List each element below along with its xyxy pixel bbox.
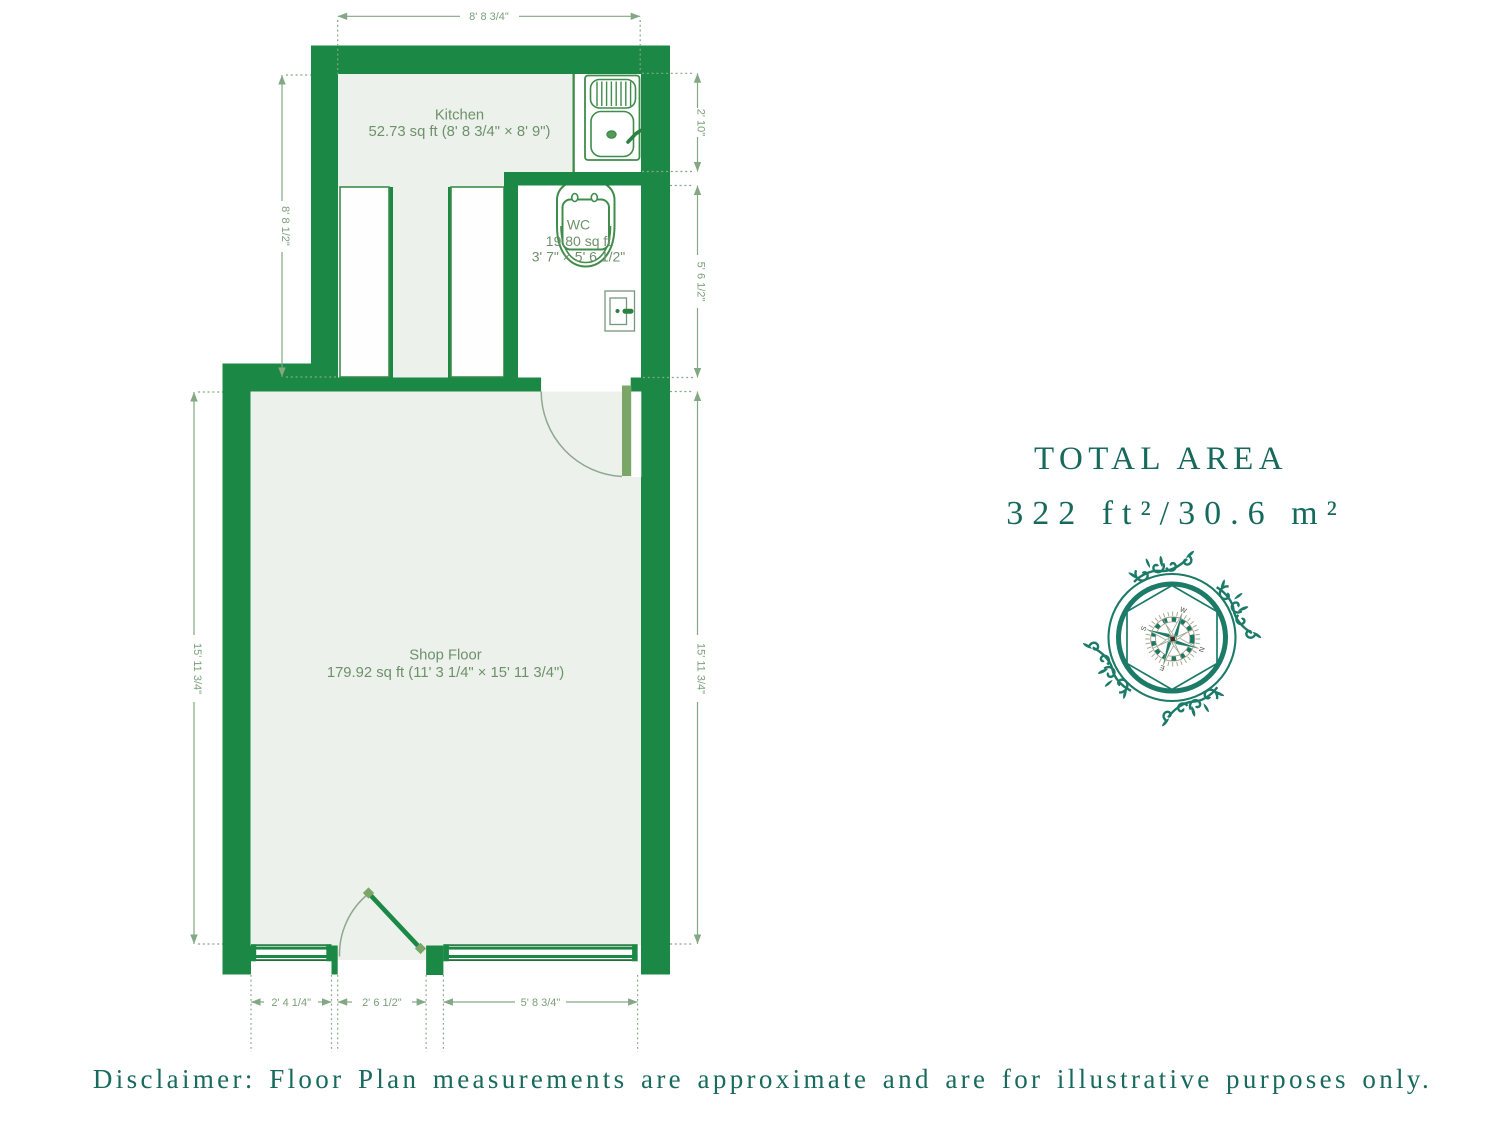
svg-text:2' 10": 2' 10"	[695, 109, 707, 137]
svg-text:WC: WC	[567, 216, 590, 232]
svg-text:Kitchen: Kitchen	[435, 108, 484, 124]
svg-text:8' 8 3/4": 8' 8 3/4"	[469, 11, 509, 23]
svg-text:S: S	[1140, 625, 1148, 632]
svg-text:2' 4 1/4": 2' 4 1/4"	[271, 997, 311, 1009]
svg-text:5' 8 3/4": 5' 8 3/4"	[521, 997, 561, 1009]
svg-text:Shop Floor: Shop Floor	[409, 648, 481, 664]
svg-text:322 ft²/30.6 m²: 322 ft²/30.6 m²	[1006, 495, 1346, 532]
svg-text:52.73 sq ft (8' 8 3/4" × 8' 9": 52.73 sq ft (8' 8 3/4" × 8' 9")	[369, 124, 551, 140]
svg-text:N: N	[1197, 646, 1205, 653]
svg-text:2' 6 1/2": 2' 6 1/2"	[362, 997, 402, 1009]
svg-text:TOTAL AREA: TOTAL AREA	[1034, 441, 1288, 477]
svg-text:E: E	[1159, 663, 1166, 671]
svg-text:8' 8 1/2": 8' 8 1/2"	[279, 206, 291, 246]
svg-text:19.80 sq ft: 19.80 sq ft	[546, 233, 611, 249]
svg-text:W: W	[1179, 606, 1188, 615]
svg-text:15' 11 3/4": 15' 11 3/4"	[695, 643, 707, 694]
svg-text:179.92 sq ft (11' 3 1/4" × 15': 179.92 sq ft (11' 3 1/4" × 15' 11 3/4")	[327, 665, 564, 681]
svg-text:Disclaimer: Floor Plan measure: Disclaimer: Floor Plan measurements are …	[93, 1064, 1432, 1094]
svg-text:3' 7" × 5' 6 1/2": 3' 7" × 5' 6 1/2"	[532, 249, 626, 265]
svg-text:15' 11 3/4": 15' 11 3/4"	[191, 643, 203, 694]
svg-text:5' 6 1/2": 5' 6 1/2"	[695, 262, 707, 302]
